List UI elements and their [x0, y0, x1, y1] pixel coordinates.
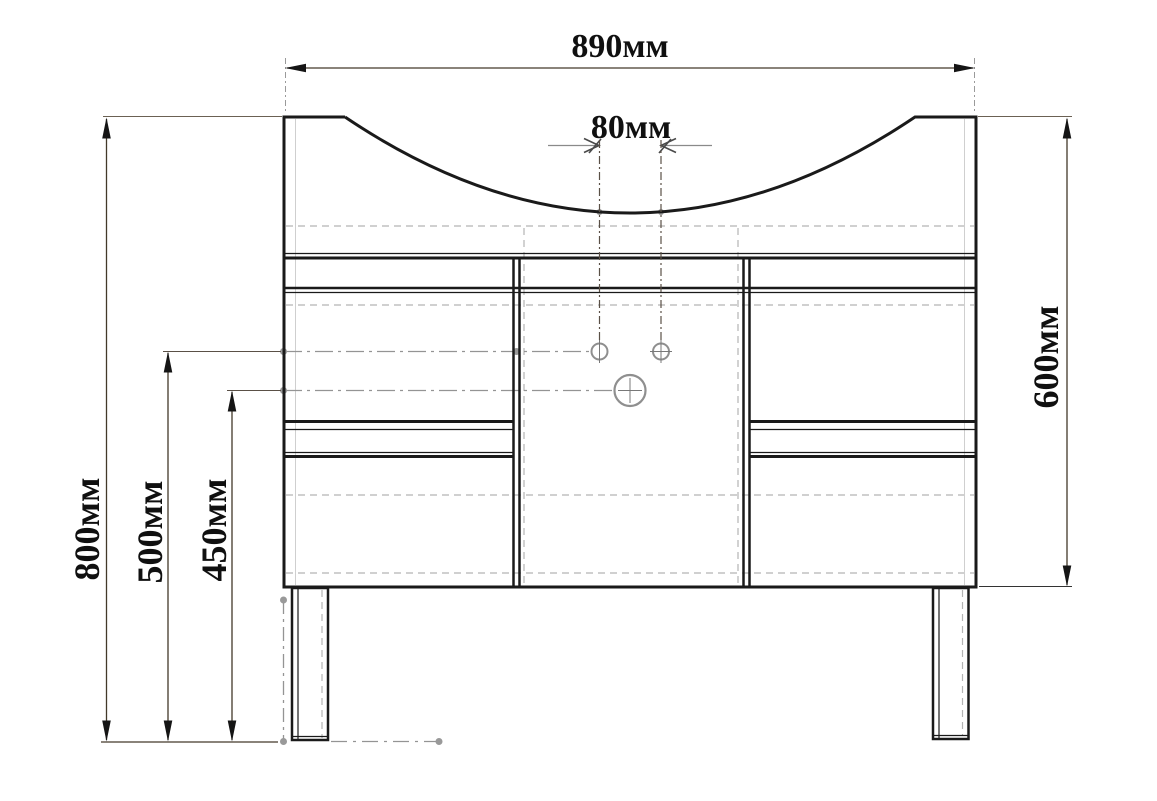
centerline-dots: [280, 209, 664, 745]
mounting-holes: [592, 340, 673, 406]
dim-cabinet-height-label: 600мм: [1026, 305, 1066, 408]
dot: [436, 738, 443, 745]
right-leg-outline: [933, 588, 969, 739]
arrowhead-down: [228, 721, 237, 742]
dot: [280, 597, 287, 604]
arrowhead-down: [102, 721, 111, 742]
hidden-lines: [286, 226, 974, 738]
dimension-cabinet-height: 600мм: [978, 117, 1072, 587]
hole-crosshairs: [600, 340, 673, 403]
cabinet: [284, 117, 976, 740]
dim-overall-width-label: 890мм: [571, 28, 668, 65]
arrowhead-down: [1063, 566, 1072, 587]
dimension-overall-width: 890мм: [285, 28, 975, 113]
dimension-overall-height: 800мм: [67, 117, 282, 742]
dot: [280, 738, 287, 745]
arrowhead-up: [228, 391, 237, 412]
arrowhead-up: [102, 118, 111, 139]
dimension-large-hole-height: 450мм: [194, 391, 281, 742]
arrowhead-up: [1063, 118, 1072, 139]
dim-large-hole-height-label: 450мм: [194, 478, 234, 581]
left-drawer-joints: [284, 422, 514, 457]
arrowhead-left: [285, 64, 306, 72]
arrowhead-up: [164, 352, 173, 373]
right-leg: [933, 588, 969, 739]
drawing-svg: 890мм 80мм 600мм 800мм: [0, 0, 1157, 801]
dim-hole-spacing-label: 80мм: [591, 109, 671, 146]
centerlines: [284, 352, 614, 742]
panel-thickness-guides: [296, 119, 965, 585]
right-drawer-joints: [750, 422, 977, 457]
dim-small-holes-height-label: 500мм: [130, 480, 170, 583]
vanity-cabinet-technical-drawing: 890мм 80мм 600мм 800мм: [0, 0, 1157, 801]
arrowhead-right: [954, 64, 975, 72]
arrowhead-down: [164, 721, 173, 742]
dim-overall-height-label: 800мм: [67, 477, 107, 580]
